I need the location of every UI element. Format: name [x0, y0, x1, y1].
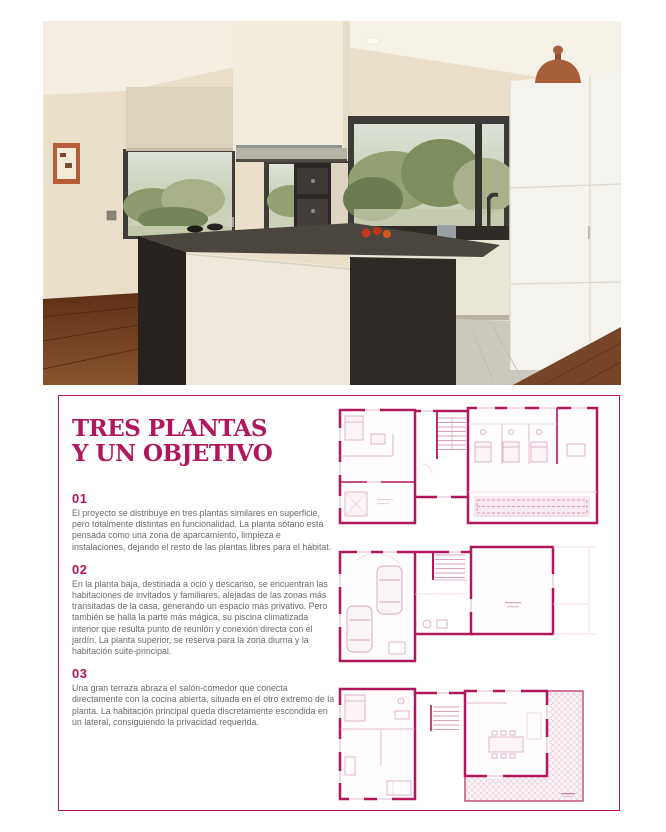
- floor-plan-top: [337, 404, 601, 529]
- magazine-page: { "page": {"type": "magazine-article-pag…: [0, 0, 666, 832]
- light-switch: [107, 211, 116, 220]
- section-number: 03: [72, 667, 338, 681]
- section-text: El proyecto se distribuye en tres planta…: [72, 508, 335, 553]
- extractor-hood: [233, 21, 350, 162]
- wall-picture: [53, 143, 80, 184]
- roller-blind-bar: [126, 148, 233, 151]
- roller-blind: [126, 87, 233, 151]
- section-text: Una gran terraza abraza el salón-comedor…: [72, 683, 335, 728]
- feature-box: TRES PLANTASY UN OBJETIVO 01 El proyecto…: [58, 395, 620, 811]
- article-section-03: 03 Una gran terraza abraza el salón-come…: [72, 667, 338, 728]
- title-line-1: TRES PLANTAS: [72, 415, 267, 442]
- white-cabinets: [510, 71, 621, 370]
- terrace-label-marks: [561, 793, 575, 794]
- room-label-marks: [505, 602, 521, 603]
- article-section-02: 02 En la planta baja, destinada a ocio y…: [72, 563, 338, 657]
- section-number: 01: [72, 492, 338, 506]
- article-text-column: TRES PLANTASY UN OBJETIVO 01 El proyecto…: [72, 416, 338, 738]
- title-line-2: Y UN OBJETIVO: [72, 440, 272, 467]
- stairs: [435, 555, 465, 578]
- section-number: 02: [72, 563, 338, 577]
- article-section-01: 01 El proyecto se distribuye en tres pla…: [72, 492, 338, 553]
- panoramic-window: [343, 116, 517, 238]
- stairs: [433, 707, 459, 730]
- kitchen-photo-illustration: [43, 21, 621, 385]
- indoor-pool: [474, 496, 590, 517]
- kitchen-island: [138, 217, 500, 385]
- floor-plan-bottom: [337, 685, 591, 807]
- ceiling-spotlight: [366, 38, 380, 45]
- dimension-lines: [553, 547, 595, 634]
- floor-plan-middle: [337, 544, 601, 669]
- section-text: En la planta baja, destinada a ocio y de…: [72, 579, 335, 657]
- article-title: TRES PLANTASY UN OBJETIVO: [72, 416, 338, 466]
- kitchen-photo: [43, 21, 621, 385]
